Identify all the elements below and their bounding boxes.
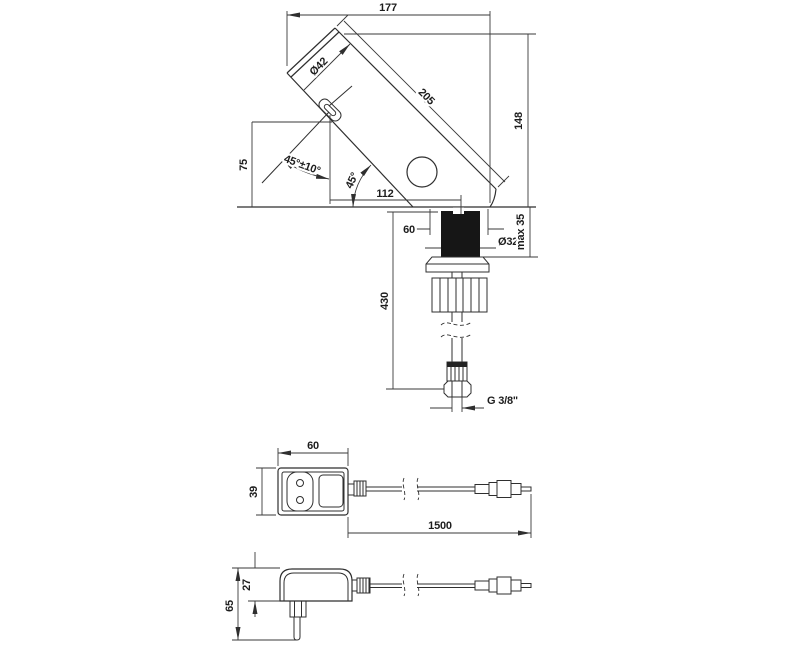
dim-cable-length: 1500 [428,520,452,532]
dim-adapter-depth: 39 [248,486,260,498]
power-adapter-top-view: 60 39 1500 [248,440,531,538]
plug-base-lines [295,601,302,617]
power-cable [366,487,475,491]
base-washer [426,257,489,272]
adapter-top-dimension-lines [262,453,531,533]
dim-outlet-height: 75 [238,159,250,171]
dim-adapter-width: 60 [307,440,319,452]
dim-outlet-offset: 112 [376,188,393,200]
dim-overall-height: 148 [513,112,525,130]
threaded-shank [441,211,480,257]
dim-hose-length: 430 [379,292,391,310]
cable-stub-side [352,580,357,591]
connector-collar [497,481,511,498]
hose-crimp-band [447,362,467,367]
faucet-side-view: 177 Ø42 205 148 75 45°±10° 45° 112 60 Ø3… [237,2,538,412]
connector-tip-side [521,584,531,588]
dc-connector [475,481,531,498]
adapter-side-extension-lines [232,568,297,640]
dim-body-angle: 45° [343,171,361,191]
body-cap-circle [407,157,437,187]
connector-sleeve-side [475,581,489,590]
power-adapter-side-view: 27 65 [224,552,531,640]
euro-plug-outline [287,472,313,511]
faucet-body-outline [287,28,496,207]
strain-relief-ribs [357,481,366,496]
connector-sleeve [475,485,489,494]
dim-thread-size: G 3/8" [487,395,518,407]
plug-pin-hole-bottom [297,497,304,504]
dim-sensor-angle: 45°±10° [282,153,322,177]
dim-adapter-height: 27 [241,579,253,591]
washer-hose-gap [452,272,462,278]
supply-hose [441,312,472,397]
dim-base-width: 60 [403,224,415,236]
dim-overall-width: 177 [379,2,397,14]
power-cable-side [370,584,475,588]
strain-relief-side-ribs [360,578,369,593]
dc-connector-side [475,577,531,594]
dimensional-drawing-svg: 177 Ø42 205 148 75 45°±10° 45° 112 60 Ø3… [0,0,800,650]
connector-step-side [489,579,497,592]
connector-tip [521,487,531,491]
faucet-extension-lines [252,11,538,412]
technical-drawing-page: 177 Ø42 205 148 75 45°±10° 45° 112 60 Ø3… [0,0,800,650]
mounting-nut-ribs [440,278,479,312]
dim-adapter-total-height: 65 [224,600,236,612]
connector-body [511,484,521,495]
plug-pin [294,617,300,640]
adapter-label-window [319,475,343,507]
cable-break-marks [403,478,419,500]
plug-base-block [290,601,306,617]
hose-hex-nut [444,381,471,397]
hose-notch [453,208,464,215]
connector-collar-side [497,577,511,594]
cable-stub [348,484,354,495]
mounting-shank [426,208,489,313]
sensor-axis-line [329,86,352,106]
connector-step [489,483,497,496]
hose-crimp-ribs [451,367,463,381]
plug-pin-hole-top [297,480,304,487]
hose-break-marks [441,322,472,337]
adapter-side-body-inner [284,573,348,601]
dim-max-deck-thickness: max 35 [515,214,527,250]
dim-body-length: 205 [416,86,437,107]
cable-break-marks-side [403,574,419,596]
adapter-top-extension-lines [256,448,531,538]
connector-body-side [511,580,521,591]
faucet-dimension-lines [252,15,530,389]
